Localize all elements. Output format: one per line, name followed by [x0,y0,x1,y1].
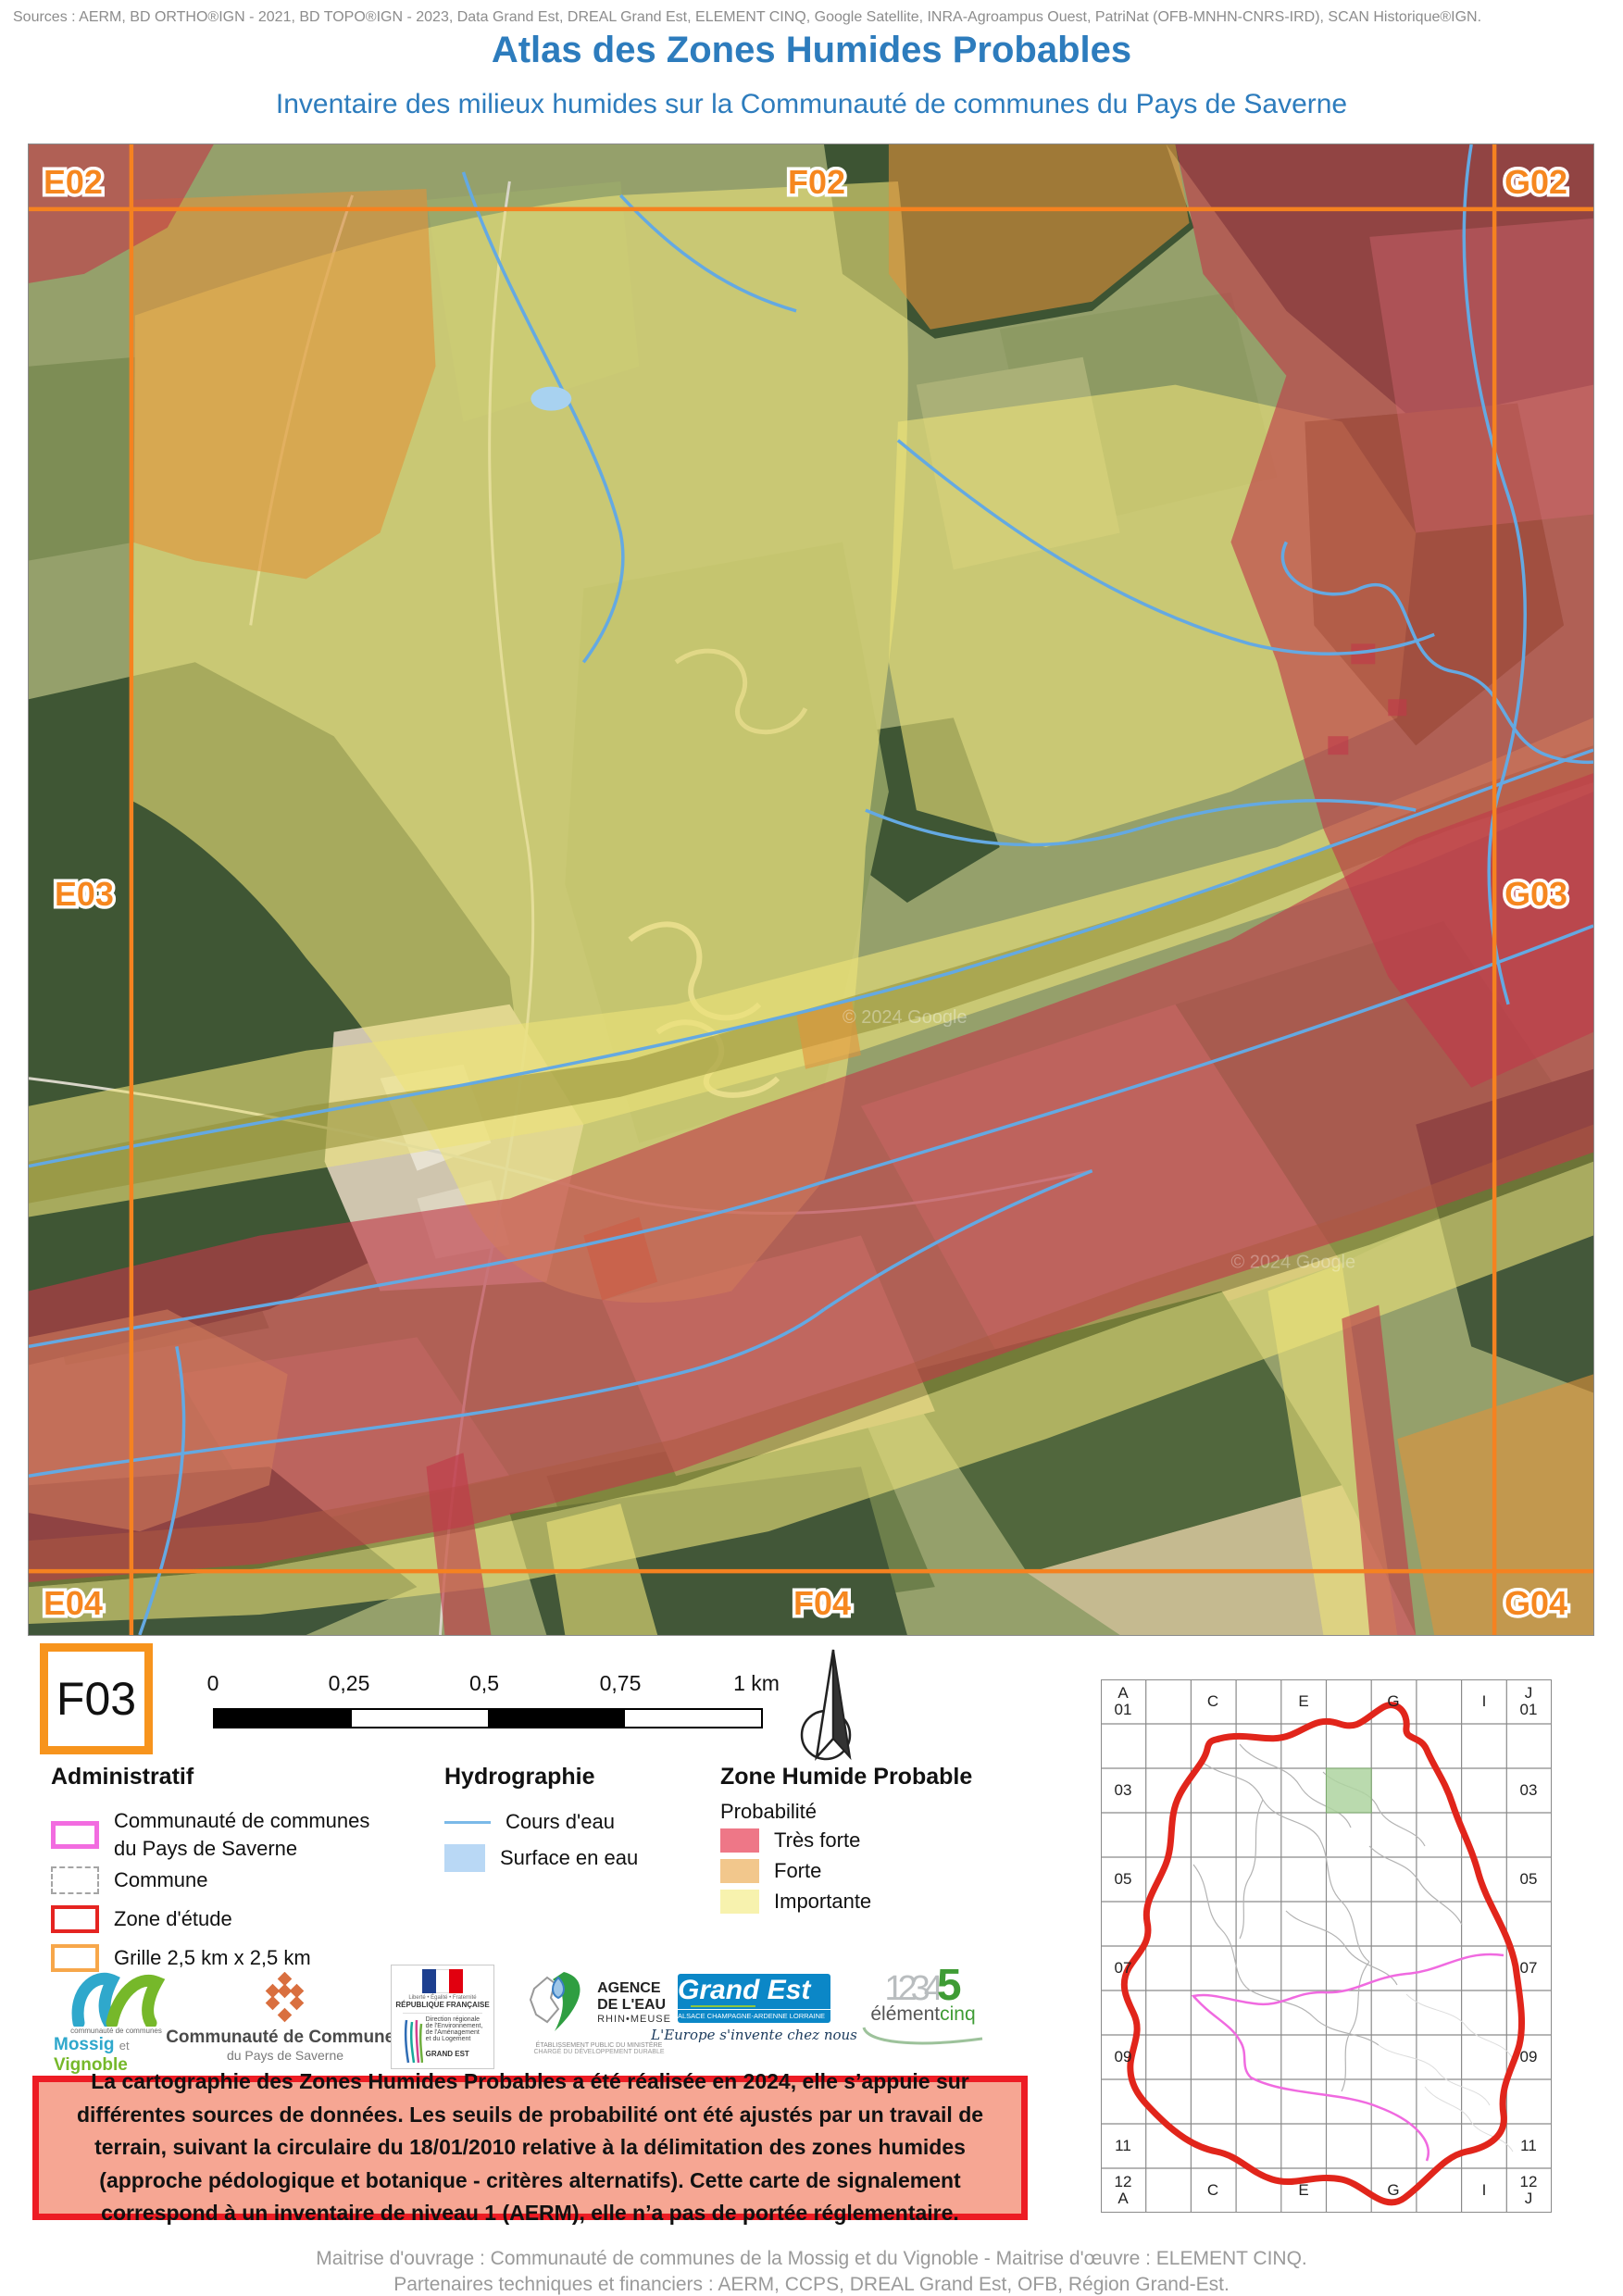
zone-etude-label: Zone d'étude [114,1907,232,1931]
grid-label-g04: G04 [1504,1584,1567,1622]
overview-label-12j: 12J [1520,2174,1538,2207]
overview-label-right-03: 03 [1520,1782,1538,1799]
overview-canvas [1101,1679,1552,2213]
mossig-m-icon [66,1967,168,2027]
logo-grand-est: Grand Est ALSACE CHAMPAGNE-ARDENNE LORRA… [678,1974,830,2043]
overview-label-left-09: 09 [1115,2049,1132,2065]
scale-segment [215,1710,352,1727]
imagery-watermark: © 2024 Google [843,1007,968,1028]
overview-label-right-11: 11 [1520,2138,1537,2154]
dreal-line4: et du Logement [426,2036,483,2042]
cc-label-line1: Communauté de communes [114,1807,369,1835]
agence-name1: AGENCE [597,1980,671,1997]
surface-eau-label: Surface en eau [500,1846,638,1870]
dreal-region: GRAND EST [426,2050,483,2058]
forte-label: Forte [774,1859,821,1883]
page-subtitle: Inventaire des milieux humides sur la Co… [0,89,1623,120]
legend-item-commune: Commune [51,1866,207,1894]
element-cinq-five: 5 [937,1961,962,2010]
legend-item-tres-forte: Très forte [720,1828,860,1853]
grid-label-f04: F04 [793,1584,851,1622]
sources-line: Sources : AERM, BD ORTHO®IGN - 2021, BD … [13,9,1615,26]
main-map[interactable]: © 2024 Google © 2024 Google E02 F02 G02 … [28,143,1594,1636]
cc-pays-saverne-swatch [51,1821,99,1849]
zone-etude-swatch [51,1905,99,1933]
scale-tick-0: 0 [207,1671,219,1696]
commune-swatch [51,1866,99,1894]
legend-item-importante: Importante [720,1890,871,1914]
overview-label-bottom-i: I [1482,2182,1487,2199]
grand-est-strip: ALSACE CHAMPAGNE-ARDENNE LORRAINE [678,2009,830,2020]
grand-est-tagline: L'Europe s'invente chez nous [651,2027,857,2043]
legend-item-zone-etude: Zone d'étude [51,1905,232,1933]
atlas-page: Sources : AERM, BD ORTHO®IGN - 2021, BD … [0,0,1623,2296]
forte-swatch [720,1859,759,1883]
logo-agence-eau: AGENCE DE L'EAU RHIN•MEUSE ÉTABLISSEMENT… [530,1970,668,2055]
page-title: Atlas des Zones Humides Probables [0,30,1623,71]
tile-id-box: F03 [40,1643,153,1754]
overview-label-left-07: 07 [1115,1960,1132,1977]
footer-line1: Maitrise d'ouvrage : Communauté de commu… [0,2248,1623,2270]
overview-map[interactable]: A01 C E G I J01 03 05 07 09 11 03 05 07 … [1101,1679,1552,2213]
mossig-cc-line: communauté de communes [70,2027,162,2035]
footer-line2: Partenaires techniques et financiers : A… [0,2274,1623,2296]
grid-label-e04: E04 [44,1584,103,1622]
agence-name2: DE L'EAU [597,1997,671,2014]
disclaimer-text: La cartographie des Zones Humides Probab… [39,2060,1021,2236]
grid-label-g03: G03 [1504,875,1567,913]
overview-label-top-g: G [1387,1693,1399,1710]
dreal-line1: Direction régionale [426,2016,483,2023]
north-arrow-icon [798,1646,863,1780]
overview-label-right-07: 07 [1520,1960,1538,1977]
grid-label-e03: E03 [55,875,114,913]
grand-est-name: Grand Est [678,1976,830,2005]
logo-cc-pays-saverne: Communauté de Communes du Pays de Savern… [202,1972,368,2063]
grid-label-f02: F02 [788,163,845,201]
dreal-line2: de l'Environnement, [426,2023,483,2029]
scale-tick-05: 0,5 [469,1671,499,1696]
legend-administratif-title: Administratif [51,1764,194,1791]
overview-label-bottom-e: E [1298,2182,1308,2199]
overview-label-left-11: 11 [1115,2138,1131,2154]
tres-forte-label: Très forte [774,1828,860,1853]
scale-tick-1km: 1 km [733,1671,780,1696]
grid-label-g02: G02 [1504,163,1567,201]
overview-label-bottom-c: C [1207,2182,1218,2199]
element-name: élément [870,2003,940,2025]
legend-hydrographie-title: Hydrographie [444,1764,595,1791]
scale-tick-075: 0,75 [600,1671,642,1696]
scale-segment [488,1710,625,1727]
scale-bar [213,1708,763,1728]
overview-label-top-i: I [1482,1693,1487,1710]
cours-eau-swatch [444,1821,491,1824]
overview-label-top-e: E [1298,1693,1308,1710]
legend-zhp-subtitle: Probabilité [720,1800,817,1824]
element-cinq-arc-icon [858,2026,988,2050]
cinq-name: cinq [940,2003,976,2025]
french-flag-icon [422,1969,463,1993]
scale-segment [352,1710,489,1727]
cc-label-line2: du Pays de Saverne [114,1835,369,1863]
agence-sub2: CHARGÉ DU DÉVELOPPEMENT DURABLE [533,2049,664,2055]
legend-item-cours-eau: Cours d'eau [444,1810,615,1834]
cours-eau-label: Cours d'eau [506,1810,615,1834]
dreal-line3: de l'Aménagement [426,2029,483,2036]
overview-highlight-cell [1327,1768,1372,1813]
overview-label-left-05: 05 [1115,1871,1132,1888]
tres-forte-swatch [720,1828,759,1853]
scale-segment [625,1710,762,1727]
overview-label-right-05: 05 [1520,1871,1538,1888]
map-pond [531,387,571,411]
overview-label-top-c: C [1207,1693,1218,1710]
agence-eau-icon [527,1970,593,2035]
legend-item-surface-eau: Surface en eau [444,1844,638,1872]
disclaimer-box: La cartographie des Zones Humides Probab… [32,2076,1028,2220]
element-cinq-numbers: 1234 [884,1969,937,2008]
overview-label-left-03: 03 [1115,1782,1132,1799]
saverne-diamond-icon [255,1972,316,2028]
mossig-et: et [119,2039,130,2053]
rf-name: RÉPUBLIQUE FRANÇAISE [395,2001,489,2009]
importante-label: Importante [774,1890,871,1914]
overview-label-bottom-g: G [1387,2182,1399,2199]
logo-republique-dreal: Liberté • Égalité • Fraternité RÉPUBLIQU… [391,1965,494,2069]
agence-name3: RHIN•MEUSE [597,2014,671,2025]
dreal-lines-icon [403,2016,423,2065]
logo-element-cinq: 12345 élémentcinq [854,1968,993,2050]
scale-tick-025: 0,25 [329,1671,370,1696]
mossig-name: Mossig [54,2035,114,2054]
importante-swatch [720,1890,759,1914]
agence-sub1: ÉTABLISSEMENT PUBLIC DU MINISTÈRE [536,2042,663,2049]
legend-item-cc-pays-saverne: Communauté de communes du Pays de Savern… [51,1807,369,1862]
commune-label: Commune [114,1868,207,1892]
legend-zhp-title: Zone Humide Probable [720,1764,972,1791]
saverne-name: Communauté de Communes [166,2028,405,2048]
tile-id: F03 [56,1672,136,1726]
main-map-canvas: © 2024 Google © 2024 Google E02 F02 G02 … [29,144,1593,1635]
legend-item-forte: Forte [720,1859,821,1883]
grid-label-e02: E02 [44,163,103,201]
overview-label-12a: 12A [1115,2174,1132,2207]
overview-label-right-09: 09 [1520,2049,1538,2065]
overview-label-a01: A01 [1115,1685,1132,1718]
imagery-watermark-2: © 2024 Google [1230,1252,1355,1272]
overview-label-j01: J01 [1520,1685,1538,1718]
surface-eau-swatch [444,1844,485,1872]
